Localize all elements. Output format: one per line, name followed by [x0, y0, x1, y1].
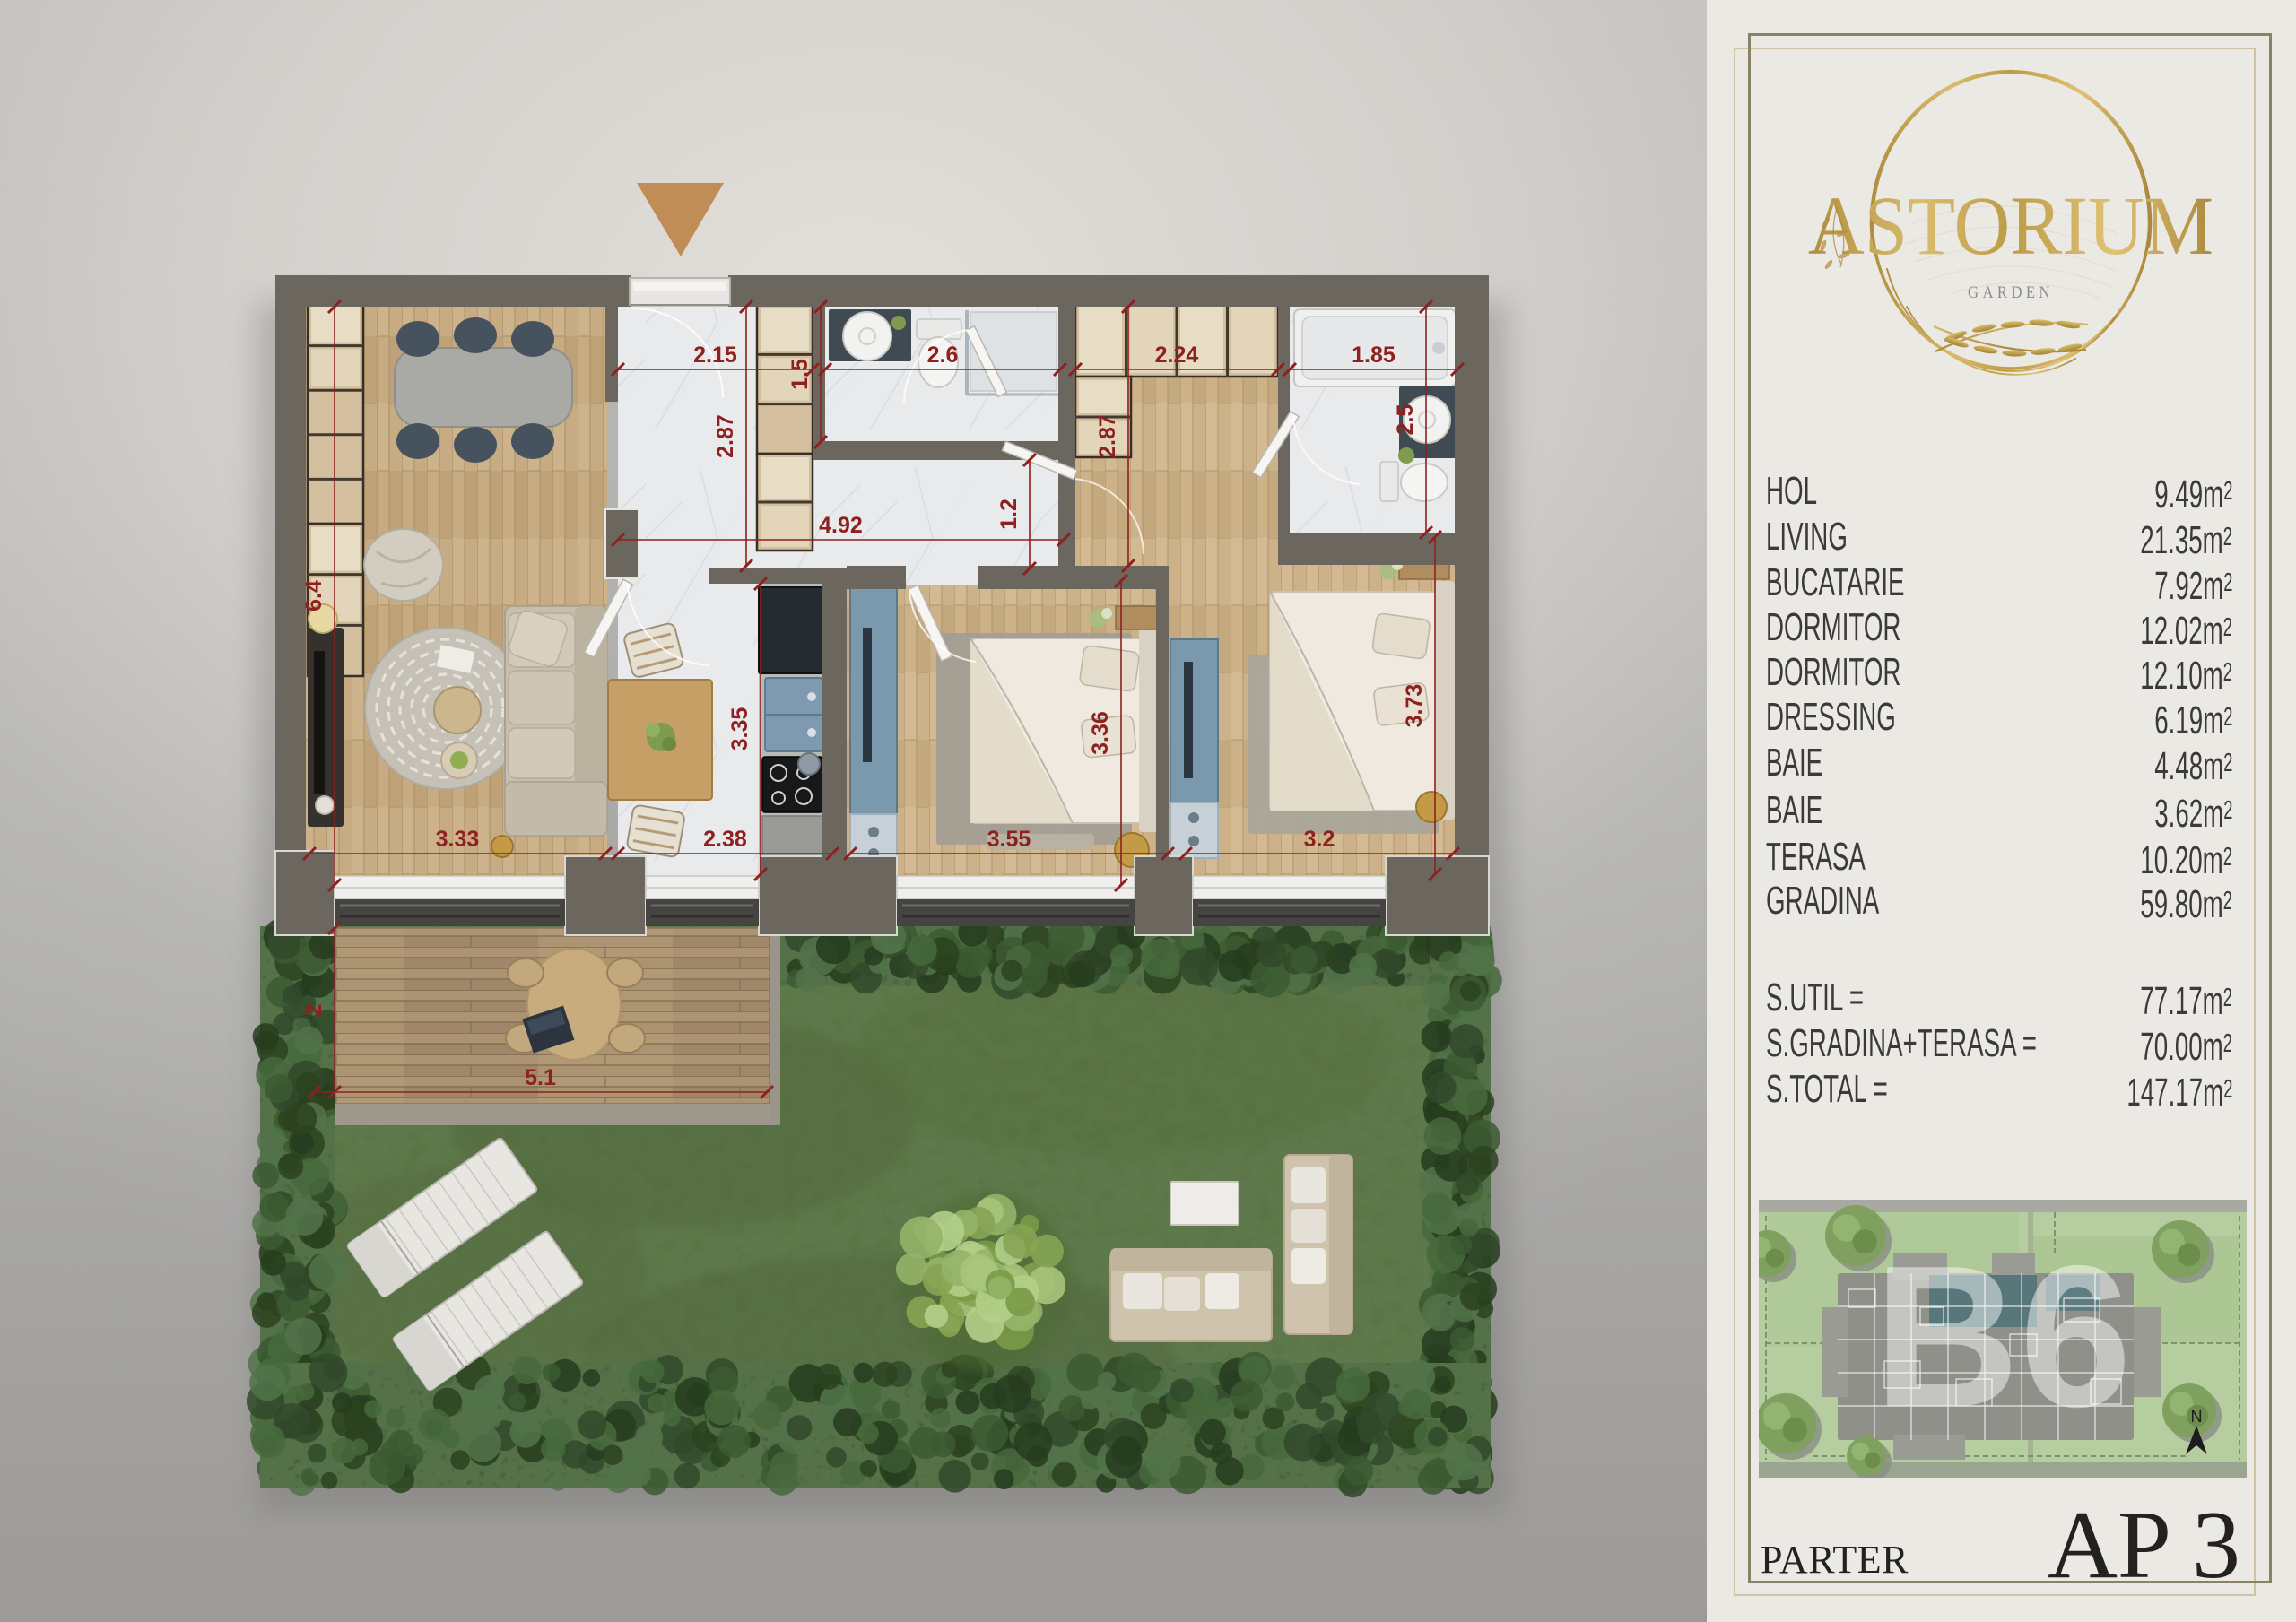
svg-text:ASTORIUM: ASTORIUM [1808, 180, 2213, 273]
svg-text:3.33: 3.33 [436, 827, 480, 852]
svg-text:GARDEN: GARDEN [1968, 283, 2054, 302]
svg-text:5.1: 5.1 [525, 1065, 556, 1090]
svg-text:3.73: 3.73 [1402, 684, 1427, 728]
svg-text:2.6: 2.6 [927, 343, 959, 368]
svg-text:1.2: 1.2 [996, 499, 1022, 530]
svg-text:2.24: 2.24 [1155, 343, 1199, 368]
svg-text:2.5: 2.5 [1393, 404, 1418, 436]
svg-text:6.4: 6.4 [301, 580, 326, 612]
svg-text:2.15: 2.15 [693, 343, 737, 368]
svg-text:2: 2 [301, 1004, 326, 1017]
svg-text:2.38: 2.38 [703, 827, 747, 852]
svg-text:3.55: 3.55 [987, 827, 1031, 852]
svg-text:3.35: 3.35 [727, 707, 752, 751]
svg-text:4.92: 4.92 [819, 513, 863, 538]
svg-text:1.85: 1.85 [1352, 343, 1396, 368]
svg-text:2.87: 2.87 [1095, 414, 1120, 458]
svg-text:3.36: 3.36 [1088, 711, 1113, 755]
svg-text:1.5: 1.5 [787, 359, 813, 390]
svg-text:3.2: 3.2 [1304, 827, 1335, 852]
svg-text:2.87: 2.87 [713, 414, 738, 458]
svg-text:N: N [2191, 1408, 2203, 1426]
svg-text:B6: B6 [1874, 1223, 2132, 1449]
